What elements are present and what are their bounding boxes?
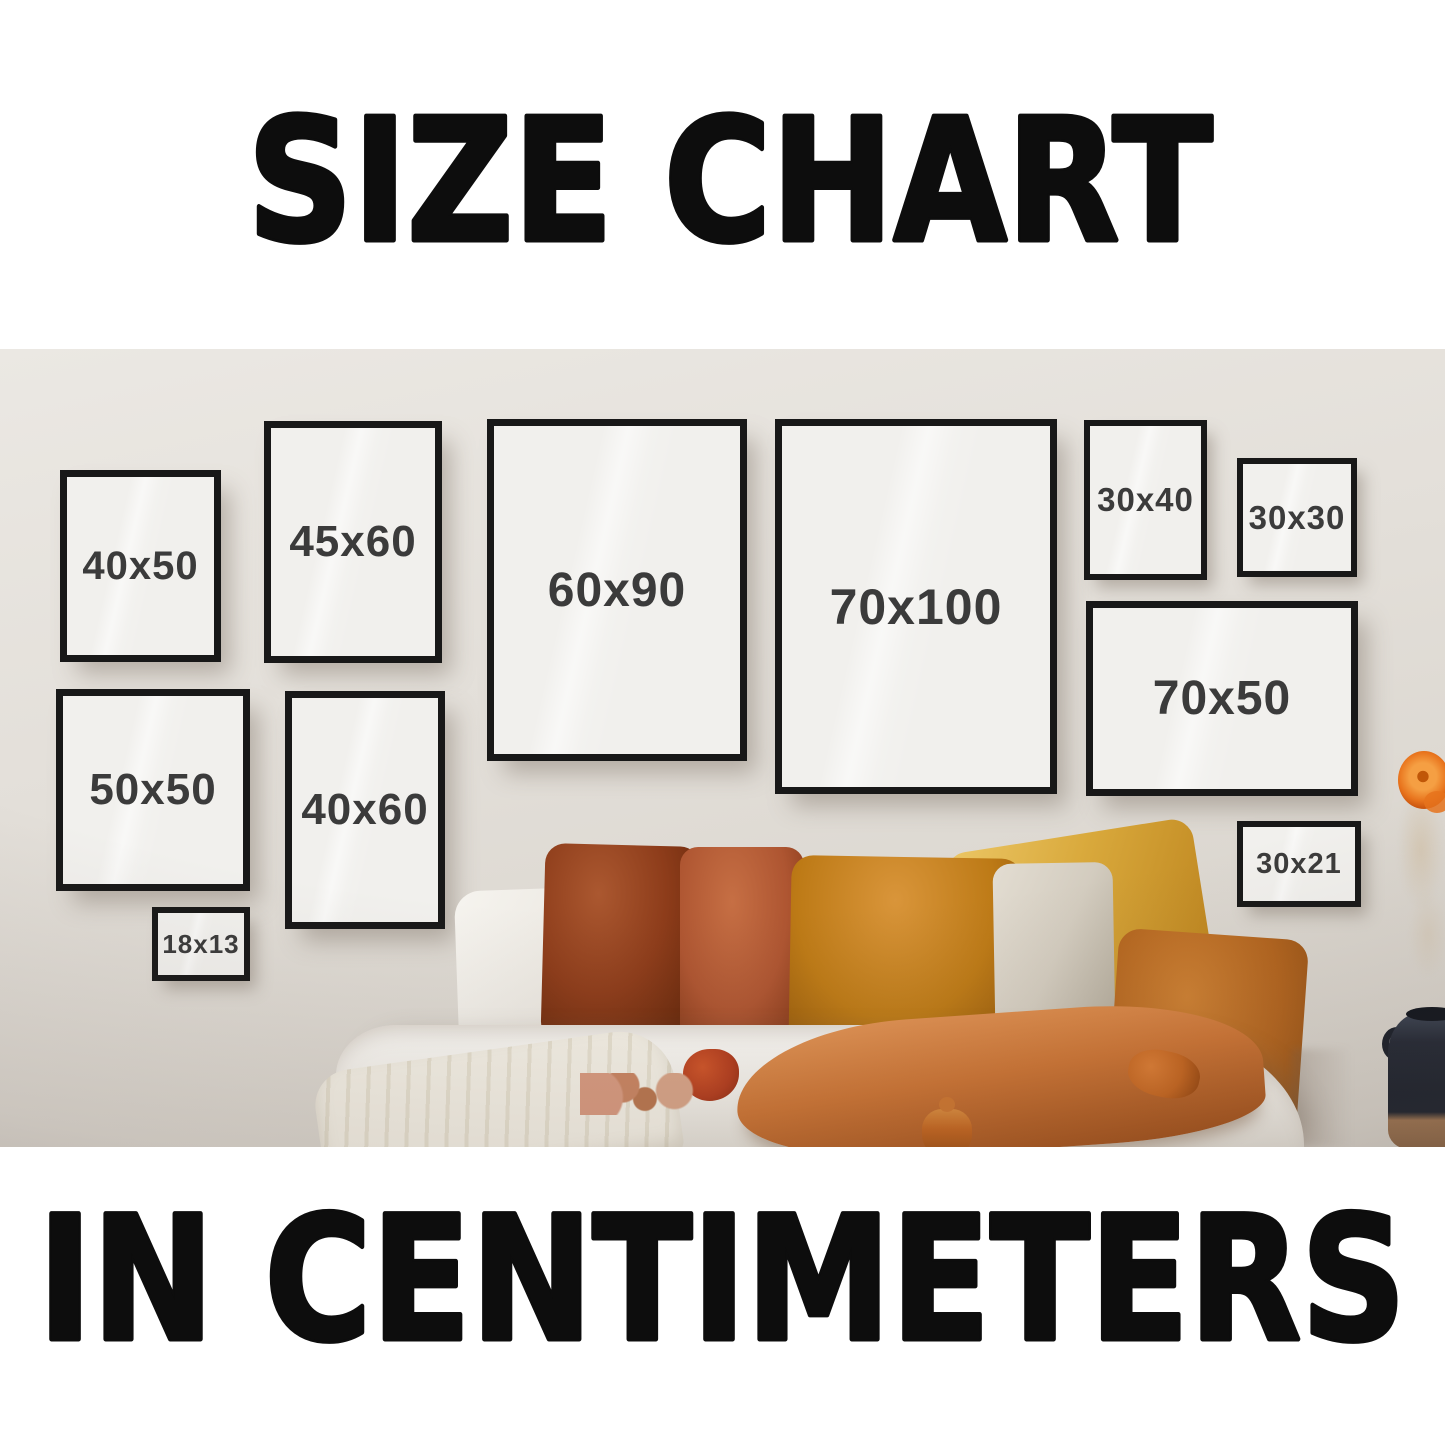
size-frame-18x13: 18x13 xyxy=(152,907,250,981)
orange-flower xyxy=(1398,751,1445,809)
size-frame-50x50: 50x50 xyxy=(56,689,250,891)
size-chart-poster: SIZE CHART 40x50 45x60 60x90 70x100 30x4… xyxy=(0,0,1445,1445)
size-frame-70x50: 70x50 xyxy=(1086,601,1358,796)
frame-size-label: 70x100 xyxy=(830,578,1003,636)
frame-size-label: 40x50 xyxy=(82,544,198,589)
pillow-terracotta xyxy=(680,847,804,1043)
top-title-band: SIZE CHART xyxy=(0,0,1445,349)
frame-size-label: 18x13 xyxy=(162,929,239,960)
pillow-rust-velvet xyxy=(540,843,700,1045)
size-frame-30x21: 30x21 xyxy=(1237,821,1361,907)
size-frame-30x40: 30x40 xyxy=(1084,420,1207,580)
size-frame-40x50: 40x50 xyxy=(60,470,221,662)
tassel-orange-hanging xyxy=(922,1109,972,1147)
frame-size-label: 40x60 xyxy=(301,785,428,835)
top-title-svg: SIZE CHART xyxy=(0,0,1445,349)
vase xyxy=(1388,1012,1445,1147)
size-frame-60x90: 60x90 xyxy=(487,419,747,761)
frame-size-label: 30x30 xyxy=(1249,499,1346,537)
size-frame-30x30: 30x30 xyxy=(1237,458,1357,577)
frame-size-label: 30x21 xyxy=(1256,848,1342,881)
bottom-title-svg: IN CENTIMETERS xyxy=(0,1147,1445,1445)
page-title: SIZE CHART xyxy=(248,83,1213,281)
frame-size-label: 70x50 xyxy=(1153,671,1291,726)
frame-size-label: 60x90 xyxy=(548,563,686,618)
size-frame-70x100: 70x100 xyxy=(775,419,1057,794)
unit-title: IN CENTIMETERS xyxy=(38,1179,1406,1380)
frame-size-label: 30x40 xyxy=(1097,481,1194,519)
bedroom-photo: 40x50 45x60 60x90 70x100 30x40 30x30 70x… xyxy=(0,349,1445,1147)
frame-size-label: 50x50 xyxy=(89,765,216,815)
size-frame-45x60: 45x60 xyxy=(264,421,442,663)
size-frame-40x60: 40x60 xyxy=(285,691,445,929)
bottom-title-band: IN CENTIMETERS xyxy=(0,1147,1445,1445)
frame-size-label: 45x60 xyxy=(289,517,416,567)
flower-sprig xyxy=(580,1073,698,1115)
dried-flowers xyxy=(1408,889,1445,979)
